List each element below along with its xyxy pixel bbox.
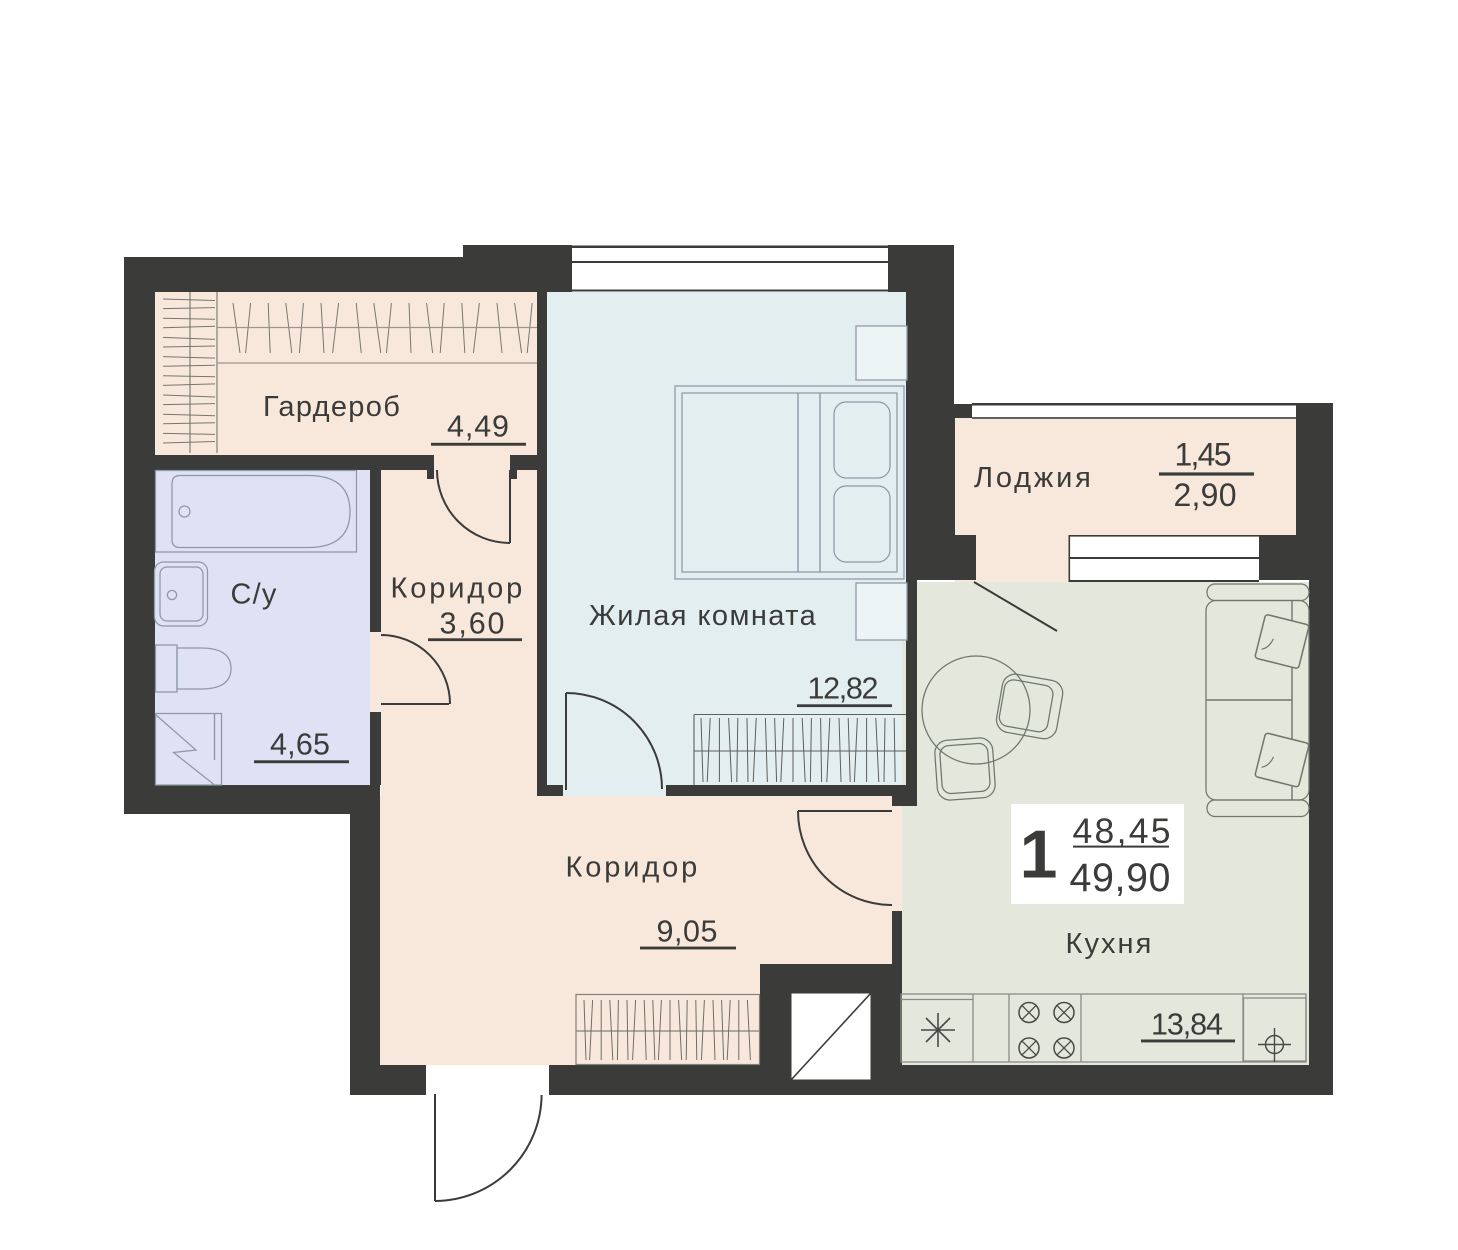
svg-text:Коридор: Коридор bbox=[391, 573, 524, 605]
svg-text:4,65: 4,65 bbox=[270, 728, 330, 762]
svg-text:1: 1 bbox=[1020, 817, 1058, 893]
svg-text:С/у: С/у bbox=[230, 579, 277, 611]
svg-text:Кухня: Кухня bbox=[1066, 928, 1153, 960]
svg-text:9,05: 9,05 bbox=[657, 914, 718, 948]
svg-text:Лоджия: Лоджия bbox=[974, 462, 1092, 494]
svg-text:49,90: 49,90 bbox=[1070, 856, 1171, 900]
svg-text:Коридор: Коридор bbox=[566, 852, 699, 884]
svg-text:48,45: 48,45 bbox=[1073, 811, 1171, 851]
svg-text:Жилая комната: Жилая комната bbox=[589, 600, 817, 632]
svg-text:3,60: 3,60 bbox=[440, 606, 505, 640]
svg-text:Гардероб: Гардероб bbox=[263, 391, 401, 423]
svg-text:1,45: 1,45 bbox=[1175, 437, 1232, 473]
svg-text:12,82: 12,82 bbox=[808, 671, 879, 705]
svg-text:13,84: 13,84 bbox=[1151, 1007, 1223, 1041]
svg-text:2,90: 2,90 bbox=[1174, 477, 1237, 513]
svg-text:4,49: 4,49 bbox=[447, 409, 509, 443]
